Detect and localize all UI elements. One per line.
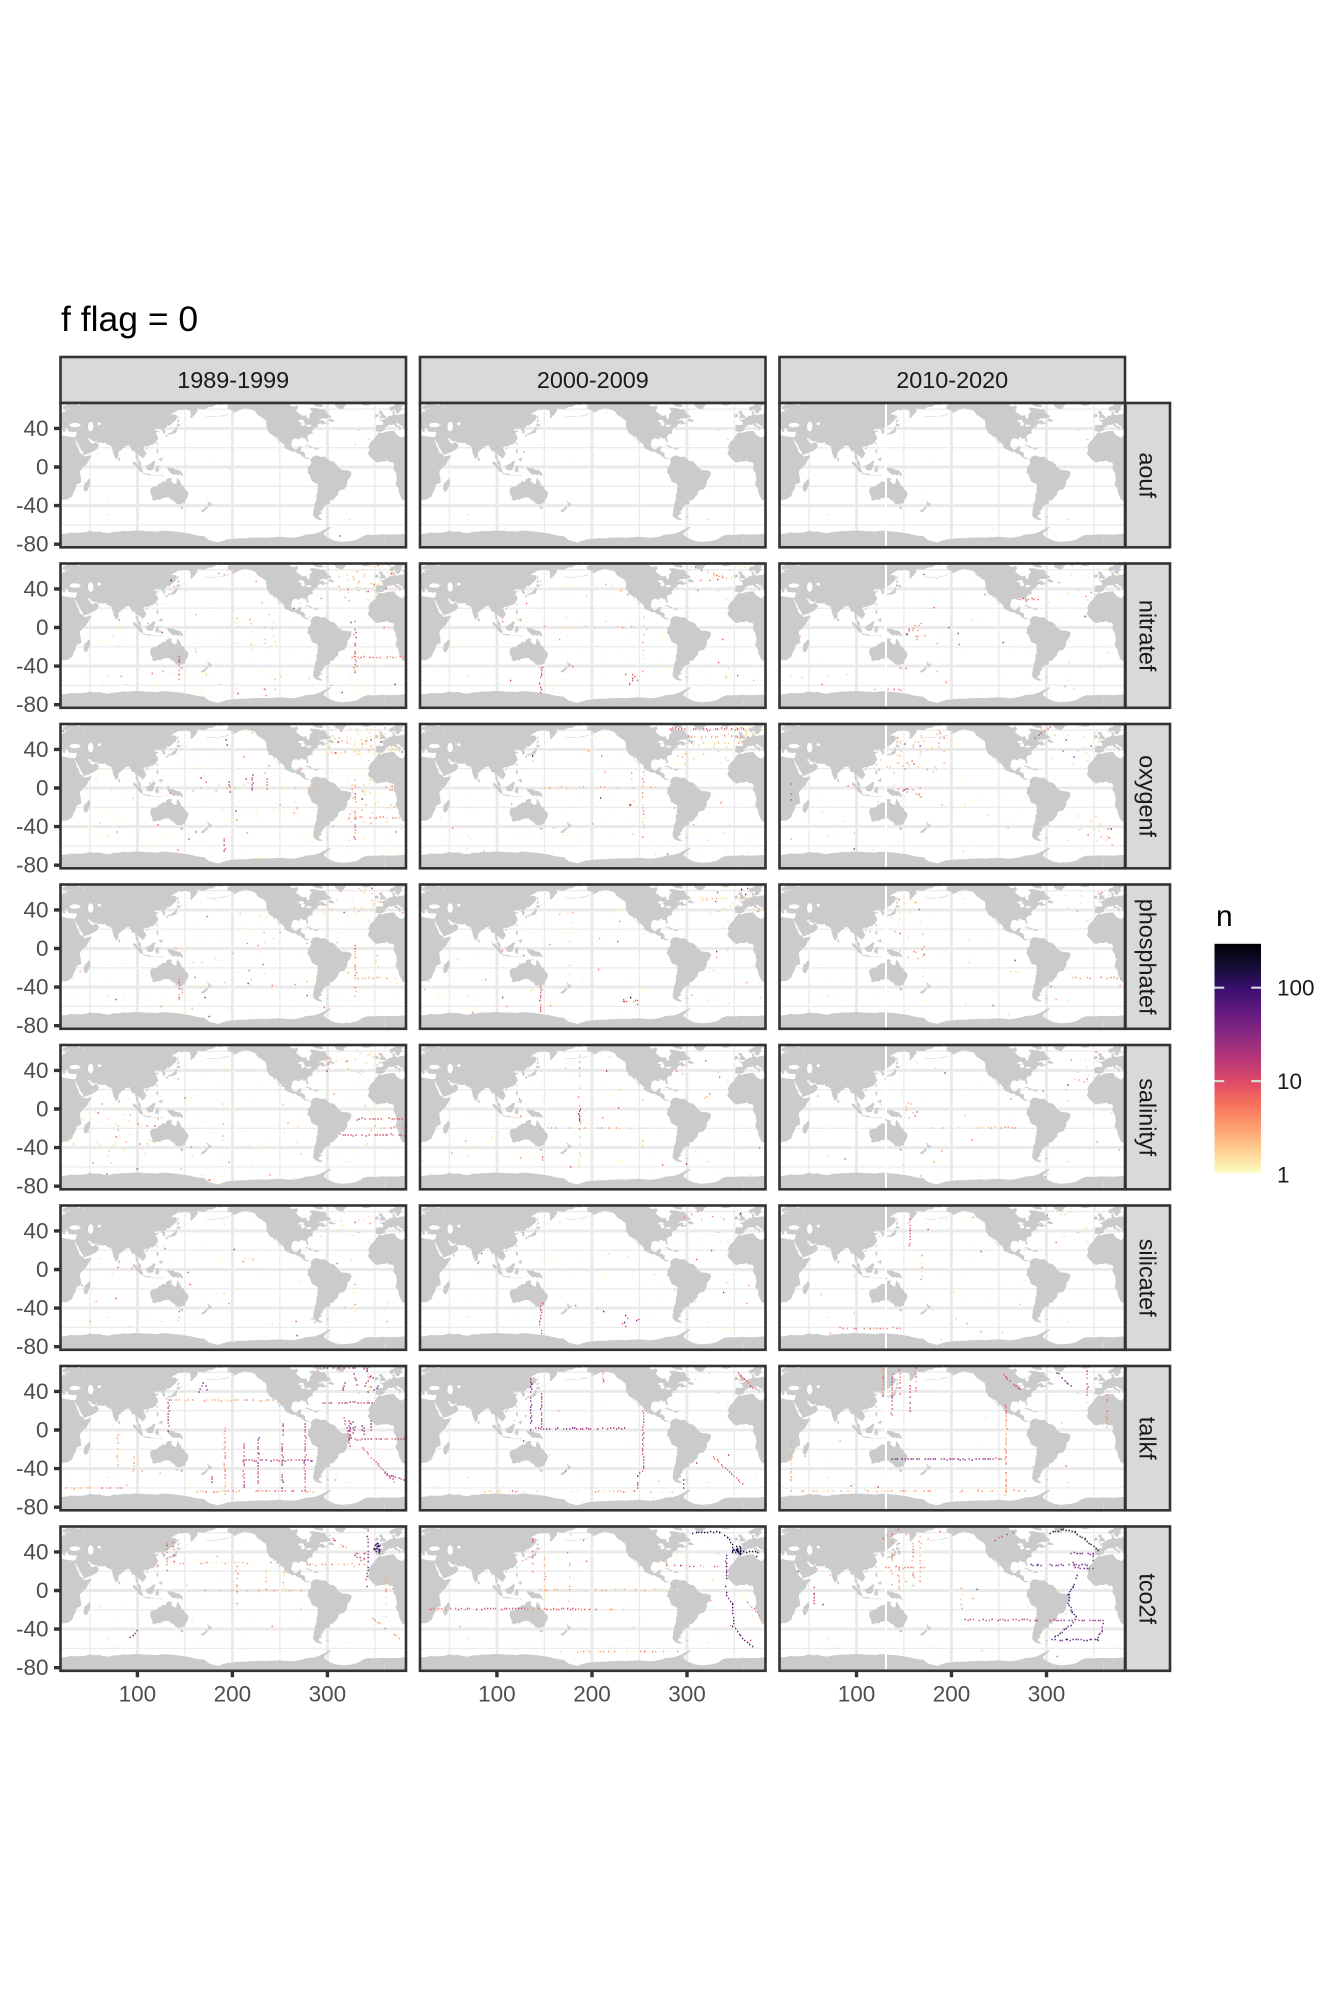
- svg-text:-40: -40: [16, 1456, 49, 1481]
- svg-text:0: 0: [36, 615, 49, 640]
- svg-text:2000-2009: 2000-2009: [537, 367, 649, 393]
- svg-text:40: 40: [23, 1218, 48, 1243]
- svg-text:40: 40: [23, 576, 48, 601]
- svg-text:-80: -80: [16, 532, 49, 557]
- svg-text:-40: -40: [16, 654, 49, 679]
- svg-text:salinityf: salinityf: [1135, 1078, 1161, 1156]
- svg-text:0: 0: [36, 1578, 49, 1603]
- svg-text:1: 1: [1277, 1163, 1290, 1188]
- svg-text:2010-2020: 2010-2020: [896, 367, 1008, 393]
- svg-text:-40: -40: [16, 814, 49, 839]
- svg-text:0: 0: [36, 936, 49, 961]
- svg-text:-80: -80: [16, 1655, 49, 1680]
- svg-text:nitratef: nitratef: [1135, 600, 1161, 672]
- svg-text:300: 300: [1028, 1681, 1066, 1706]
- svg-text:f flag = 0: f flag = 0: [61, 299, 198, 339]
- svg-text:aouf: aouf: [1135, 452, 1161, 498]
- svg-text:-80: -80: [16, 1174, 49, 1199]
- svg-text:40: 40: [23, 1379, 48, 1404]
- svg-text:100: 100: [119, 1681, 157, 1706]
- svg-text:n: n: [1216, 900, 1233, 933]
- svg-text:300: 300: [309, 1681, 347, 1706]
- svg-text:40: 40: [23, 416, 48, 441]
- svg-text:-80: -80: [16, 853, 49, 878]
- svg-text:oxygenf: oxygenf: [1135, 755, 1161, 837]
- svg-text:talkf: talkf: [1135, 1417, 1161, 1460]
- svg-text:-80: -80: [16, 1013, 49, 1038]
- svg-text:-40: -40: [16, 1296, 49, 1321]
- svg-text:0: 0: [36, 776, 49, 801]
- svg-text:phosphatef: phosphatef: [1135, 899, 1161, 1015]
- svg-text:300: 300: [668, 1681, 706, 1706]
- svg-text:200: 200: [214, 1681, 252, 1706]
- svg-text:1989-1999: 1989-1999: [177, 367, 289, 393]
- svg-text:-40: -40: [16, 975, 49, 1000]
- svg-text:silicatef: silicatef: [1135, 1239, 1161, 1317]
- svg-text:0: 0: [36, 1257, 49, 1282]
- svg-text:100: 100: [478, 1681, 516, 1706]
- svg-text:-40: -40: [16, 1135, 49, 1160]
- svg-text:tco2f: tco2f: [1135, 1573, 1161, 1624]
- svg-text:0: 0: [36, 1418, 49, 1443]
- svg-text:100: 100: [838, 1681, 876, 1706]
- svg-text:200: 200: [933, 1681, 971, 1706]
- svg-text:40: 40: [23, 1058, 48, 1083]
- svg-text:-80: -80: [16, 1495, 49, 1520]
- svg-text:10: 10: [1277, 1069, 1302, 1094]
- svg-text:-40: -40: [16, 493, 49, 518]
- svg-text:40: 40: [23, 1539, 48, 1564]
- svg-text:-80: -80: [16, 1334, 49, 1359]
- svg-text:40: 40: [23, 897, 48, 922]
- svg-text:0: 0: [36, 455, 49, 480]
- svg-text:-40: -40: [16, 1617, 49, 1642]
- svg-text:100: 100: [1277, 976, 1315, 1001]
- svg-text:0: 0: [36, 1097, 49, 1122]
- svg-text:40: 40: [23, 737, 48, 762]
- svg-text:-80: -80: [16, 692, 49, 717]
- svg-text:200: 200: [573, 1681, 611, 1706]
